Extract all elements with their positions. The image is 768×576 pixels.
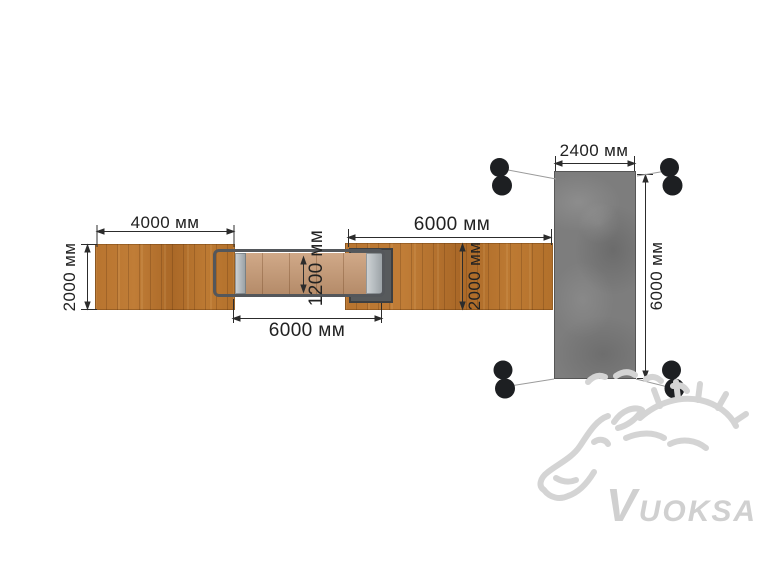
concrete-platform bbox=[554, 171, 636, 379]
dim-label-1200: 1200 мм bbox=[306, 230, 328, 306]
drawing-canvas: 4000 мм 2000 мм 6000 мм 1200 мм 6000 мм … bbox=[0, 0, 768, 576]
mount-dots-top-right bbox=[660, 158, 683, 196]
dim-label-2400: 2400 мм bbox=[560, 141, 629, 161]
bridge-frame bbox=[213, 249, 385, 297]
dim-label-4000: 4000 мм bbox=[131, 213, 200, 233]
mount-dots-bottom-left bbox=[494, 361, 516, 399]
dim-label-6000-bottom: 6000 мм bbox=[269, 320, 345, 342]
moose-logo-icon bbox=[528, 360, 768, 576]
mount-connector-top-right bbox=[637, 171, 666, 176]
watermark: VUOKSA bbox=[528, 360, 768, 576]
watermark-text: VUOKSA bbox=[606, 482, 757, 528]
mount-dots-top-left bbox=[490, 158, 512, 196]
dim-label-6000-right: 6000 мм bbox=[647, 242, 667, 311]
dim-label-2000-left: 2000 мм bbox=[60, 243, 80, 312]
dim-label-2000-right: 2000 мм bbox=[465, 242, 485, 311]
mount-connector-top-left bbox=[508, 170, 556, 179]
dim-label-6000-top: 6000 мм bbox=[414, 214, 490, 236]
